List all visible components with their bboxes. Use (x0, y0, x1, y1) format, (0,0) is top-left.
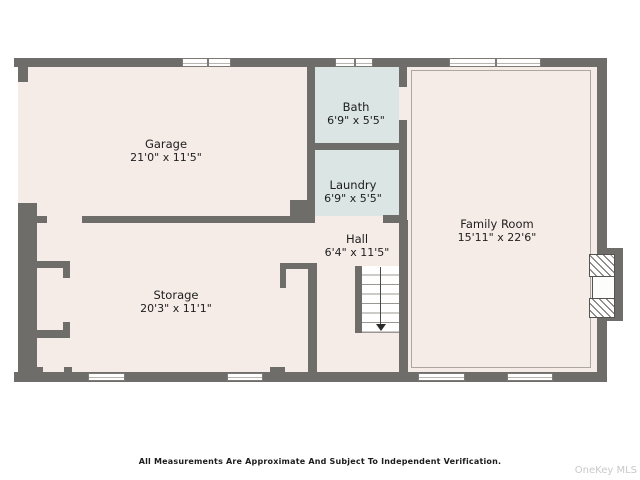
exterior-steps-lower (589, 298, 615, 318)
window-family-bottom-2 (507, 373, 553, 381)
wall-hall-alcove-v (280, 263, 286, 288)
wall-garage-bottom (82, 216, 307, 223)
room-dimensions: 15'11" x 22'6" (458, 231, 537, 245)
watermark: OneKey MLS (575, 465, 637, 476)
window-storage-2 (227, 373, 263, 381)
window-storage-1 (88, 373, 125, 381)
room-dimensions: 6'9" x 5'5" (327, 114, 385, 128)
wall-bath-right-upper (399, 62, 407, 87)
wall-divider-jog (290, 200, 315, 223)
window-family-bottom-1 (418, 373, 465, 381)
room-hall: Hall 6'4" x 11'5" (325, 232, 390, 260)
room-name: Family Room (458, 217, 537, 231)
disclaimer-text: All Measurements Are Approximate And Sub… (0, 457, 640, 466)
room-name: Hall (325, 232, 390, 246)
room-name: Storage (140, 288, 212, 302)
room-dimensions: 20'3" x 11'1" (140, 302, 212, 316)
stair-direction-line (380, 267, 381, 324)
room-dimensions: 6'4" x 11'5" (325, 246, 390, 260)
wall-left-upper (18, 58, 28, 82)
down-arrow-icon (376, 324, 386, 331)
wall-bath-laundry-divider (307, 143, 404, 150)
wall-closet-top-stub (63, 261, 70, 278)
wall-hall-family (399, 220, 408, 377)
wall-storage-hall (308, 263, 317, 377)
room-storage: Storage 20'3" x 11'1" (140, 288, 212, 316)
wall-garage-bath-divider (307, 62, 315, 203)
room-garage: Garage 21'0" x 11'5" (130, 137, 202, 165)
room-dimensions: 6'9" x 5'5" (324, 192, 382, 206)
room-dimensions: 21'0" x 11'5" (130, 151, 202, 165)
exterior-steps-upper (589, 254, 615, 277)
exterior-steps-landing (592, 276, 615, 299)
door-jamb-storage (270, 367, 285, 373)
floor-plan: Garage 21'0" x 11'5" Bath 6'9" x 5'5" La… (0, 0, 640, 480)
door-jamb-right (64, 367, 72, 374)
room-family-room: Family Room 15'11" x 22'6" (458, 217, 537, 245)
wall-closet-bottom-stub (63, 322, 70, 338)
window-garage (182, 58, 231, 67)
room-name: Garage (130, 137, 202, 151)
room-name: Bath (327, 100, 385, 114)
wall-left-lower (18, 203, 37, 382)
room-name: Laundry (324, 178, 382, 192)
window-family-top (449, 58, 541, 67)
room-bath: Bath 6'9" x 5'5" (327, 100, 385, 128)
wall-right (597, 58, 607, 382)
wall-stair-left (355, 266, 362, 333)
window-bath (335, 58, 373, 67)
door-jamb-left (33, 367, 43, 374)
room-laundry: Laundry 6'9" x 5'5" (324, 178, 382, 206)
wall-laundry-right (399, 143, 407, 223)
wall-garage-bottom-stub (37, 216, 47, 223)
